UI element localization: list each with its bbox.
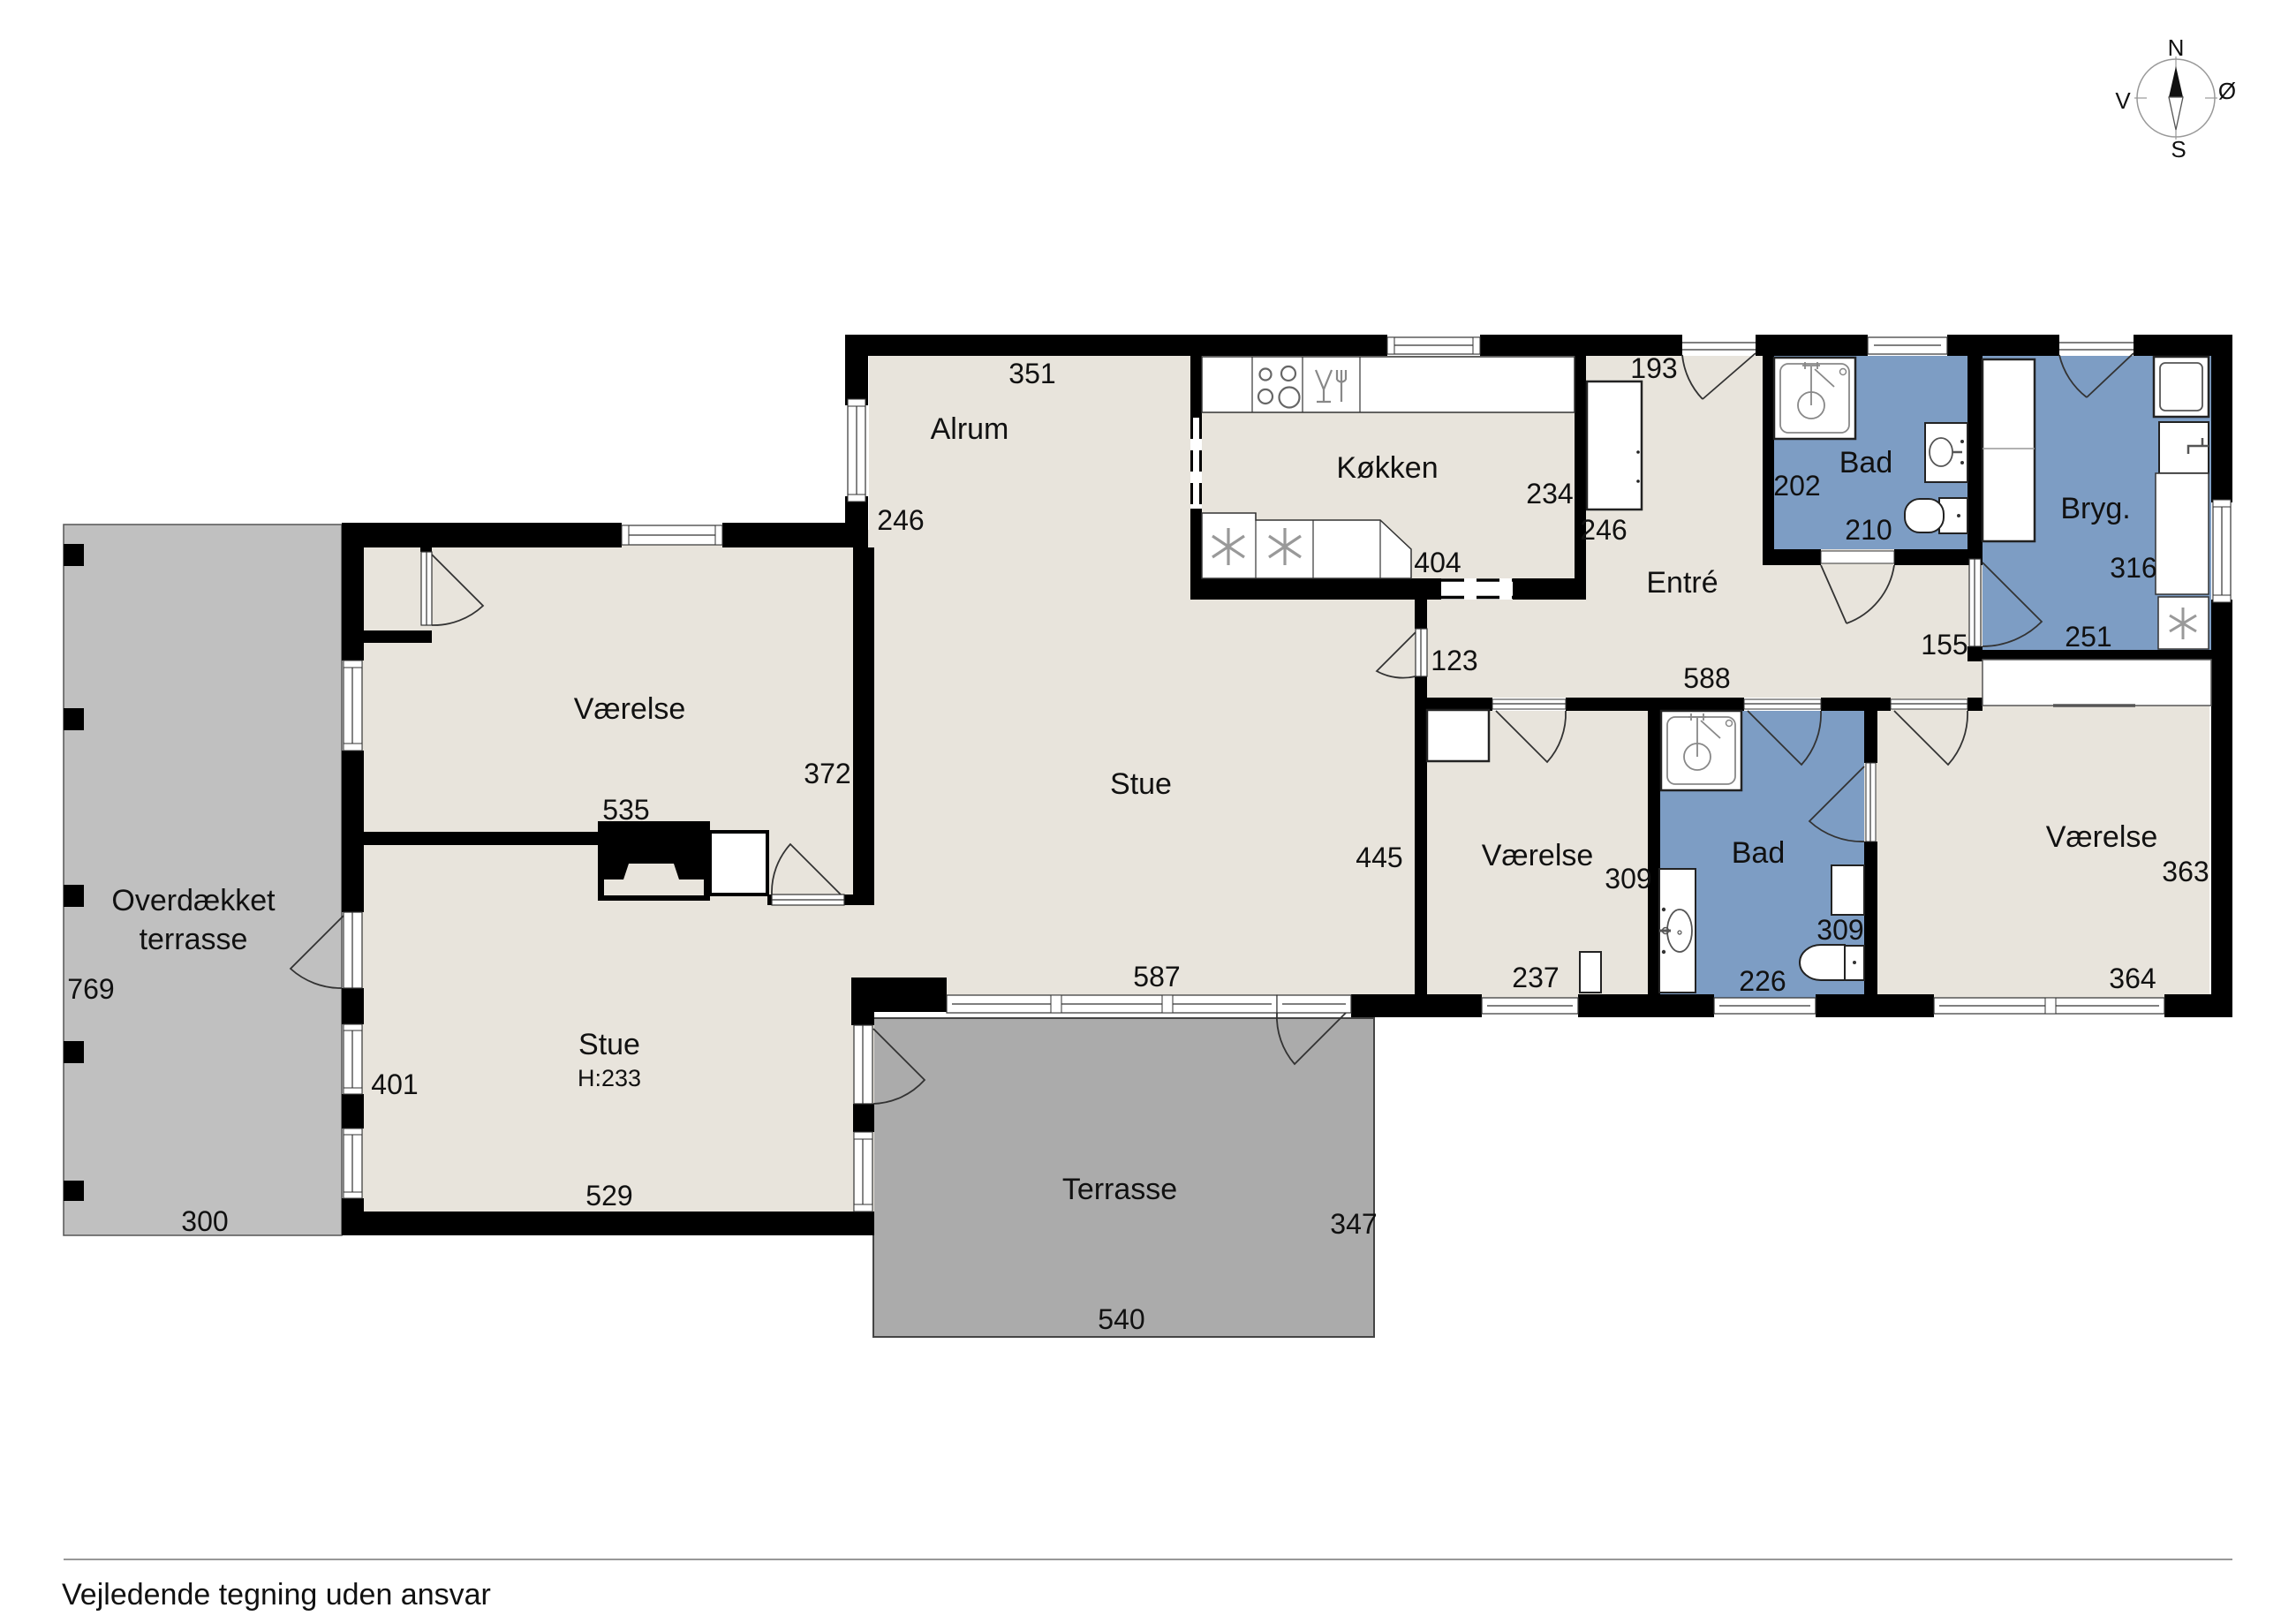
svg-text:Værelse: Værelse xyxy=(1482,839,1594,872)
svg-text:202: 202 xyxy=(1773,470,1820,502)
svg-text:300: 300 xyxy=(181,1205,228,1237)
svg-text:210: 210 xyxy=(1845,514,1892,546)
svg-text:Værelse: Værelse xyxy=(574,692,686,726)
svg-text:Stue: Stue xyxy=(578,1028,640,1061)
svg-text:Ø: Ø xyxy=(2218,78,2236,104)
svg-text:445: 445 xyxy=(1356,842,1402,873)
svg-text:Bryg.: Bryg. xyxy=(2060,492,2130,525)
svg-text:401: 401 xyxy=(371,1068,418,1100)
svg-text:316: 316 xyxy=(2110,552,2156,584)
svg-text:587: 587 xyxy=(1133,961,1180,993)
svg-text:535: 535 xyxy=(602,794,649,826)
svg-text:351: 351 xyxy=(1008,358,1055,389)
svg-text:H:233: H:233 xyxy=(578,1065,641,1091)
svg-text:372: 372 xyxy=(804,758,850,789)
svg-text:251: 251 xyxy=(2065,621,2111,653)
svg-text:237: 237 xyxy=(1512,962,1559,993)
svg-text:226: 226 xyxy=(1739,965,1786,997)
svg-text:Vejledende tegning uden ansvar: Vejledende tegning uden ansvar xyxy=(62,1578,491,1612)
svg-text:529: 529 xyxy=(585,1180,632,1212)
svg-text:588: 588 xyxy=(1683,662,1730,694)
svg-text:Værelse: Værelse xyxy=(2046,820,2158,854)
svg-text:V: V xyxy=(2115,87,2131,114)
svg-text:Bad: Bad xyxy=(1839,446,1893,479)
svg-text:364: 364 xyxy=(2109,962,2156,994)
svg-text:Overdækket: Overdækket xyxy=(111,884,276,917)
svg-text:309: 309 xyxy=(1605,863,1651,895)
svg-text:155: 155 xyxy=(1921,629,1967,661)
svg-text:347: 347 xyxy=(1330,1208,1377,1240)
svg-text:terrasse: terrasse xyxy=(140,923,248,956)
svg-text:S: S xyxy=(2171,136,2186,162)
svg-text:Bad: Bad xyxy=(1732,836,1786,870)
svg-text:404: 404 xyxy=(1414,547,1461,578)
svg-text:246: 246 xyxy=(1580,514,1627,546)
svg-text:Stue: Stue xyxy=(1110,767,1172,801)
svg-text:Entré: Entré xyxy=(1646,566,1718,600)
svg-text:193: 193 xyxy=(1630,352,1677,384)
svg-text:Terrasse: Terrasse xyxy=(1062,1173,1177,1206)
svg-text:N: N xyxy=(2168,34,2185,61)
svg-text:246: 246 xyxy=(877,504,924,536)
svg-text:540: 540 xyxy=(1098,1303,1144,1335)
svg-text:234: 234 xyxy=(1526,478,1573,510)
svg-text:123: 123 xyxy=(1431,645,1477,676)
svg-text:Alrum: Alrum xyxy=(931,412,1009,446)
svg-text:769: 769 xyxy=(67,973,114,1005)
svg-text:Køkken: Køkken xyxy=(1336,451,1438,485)
svg-text:309: 309 xyxy=(1816,914,1863,946)
svg-text:363: 363 xyxy=(2162,856,2209,887)
